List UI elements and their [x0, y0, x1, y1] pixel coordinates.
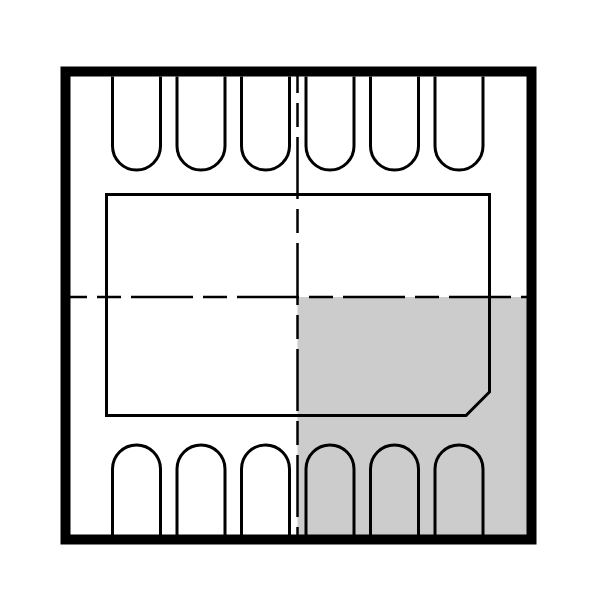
package-drawing-svg [0, 0, 600, 599]
package-outline-drawing [0, 0, 600, 599]
